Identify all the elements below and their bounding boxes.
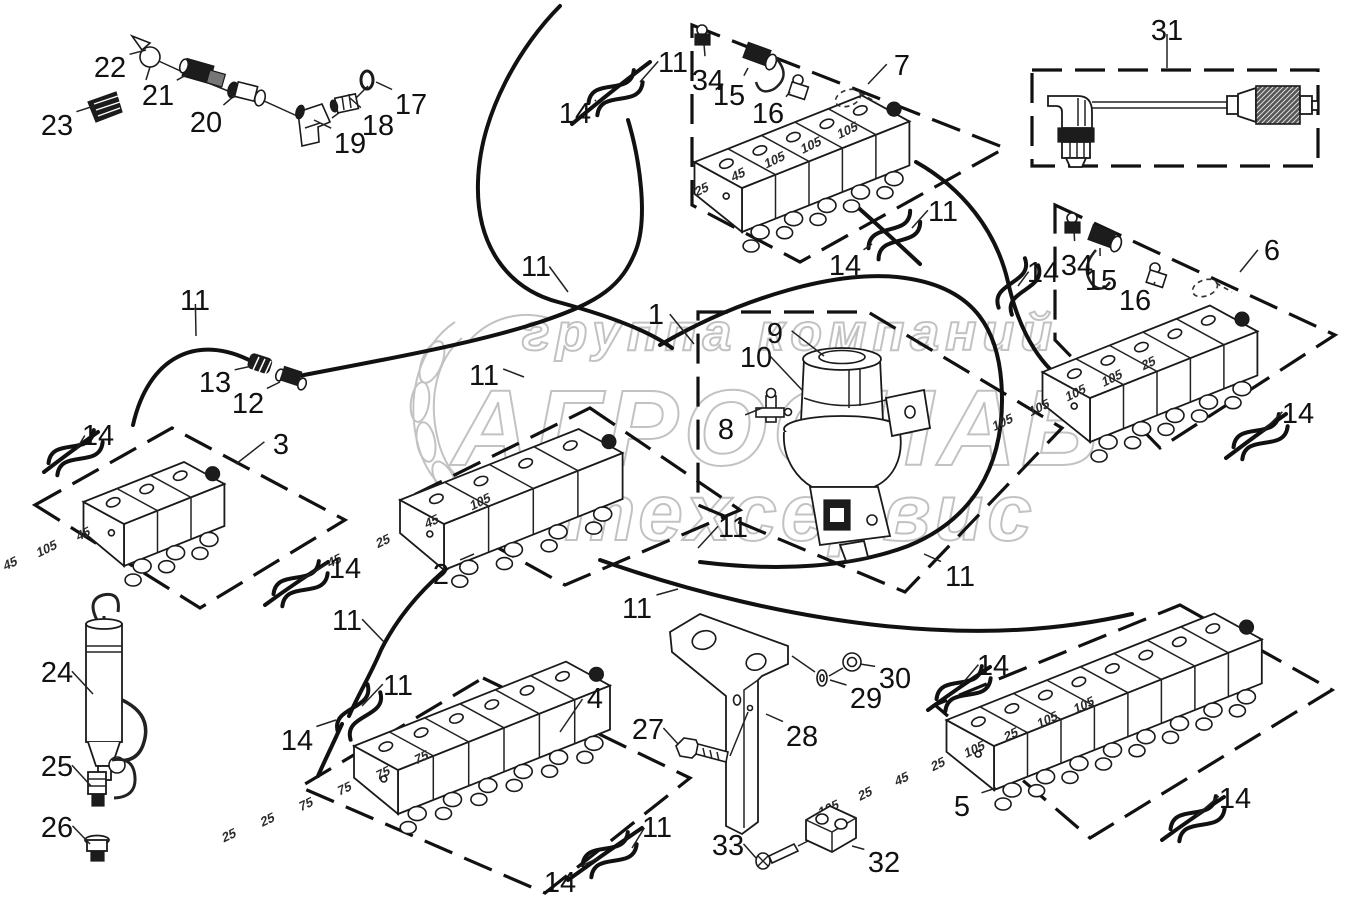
block-coupler [1104, 743, 1122, 757]
block-coupler [125, 574, 141, 586]
block-coupler [1225, 397, 1241, 409]
block-coupler [1133, 422, 1151, 436]
block-coupler [1237, 690, 1255, 704]
block-end-fitting [887, 102, 901, 116]
block-end-hole [427, 531, 433, 537]
callout-leader-3 [236, 442, 264, 464]
block-end-fitting [602, 435, 616, 449]
block-coupler [444, 793, 462, 807]
block-end-hole [108, 530, 114, 536]
watermark-bottom-text: техсервис [564, 468, 1036, 557]
block-section-stamp: 75 [337, 778, 353, 799]
callout-20: 20 [190, 107, 222, 139]
clamp-block-32 [806, 806, 856, 852]
block-end-fitting [206, 467, 220, 481]
callout-11: 11 [928, 196, 958, 228]
callout-6: 6 [1264, 235, 1280, 267]
block-coupler [810, 213, 826, 225]
clamp-22 [132, 36, 160, 80]
block-section-stamp: 45 [894, 768, 910, 789]
grease-cartridge-24 [86, 594, 146, 780]
hose-11-to-block5 [600, 560, 1132, 631]
callout-33: 33 [712, 830, 744, 862]
callout-26: 26 [41, 812, 73, 844]
parts-diagram-page: группа компаний АГРОСНАБ техсервис [0, 0, 1361, 901]
callout-14: 14 [544, 867, 576, 899]
callout-leader-6 [1240, 250, 1258, 272]
callout-leader-14 [300, 564, 327, 580]
hose-break-icon [865, 206, 924, 263]
block-coupler [594, 507, 612, 521]
nut-30 [829, 653, 861, 676]
bracket-hole-small [734, 695, 741, 705]
callout-11: 11 [469, 360, 499, 392]
fitting-chain-top-left [88, 36, 373, 146]
valve-block-4: 252575757575 [221, 662, 610, 846]
block-coupler [818, 198, 836, 212]
block-coupler [408, 807, 426, 821]
block-coupler [1192, 410, 1208, 422]
block-coupler [460, 560, 478, 574]
callout-13: 13 [199, 367, 231, 399]
block-coupler [785, 212, 803, 226]
callout-11: 11 [383, 670, 413, 702]
block-coupler [1196, 718, 1212, 730]
block-section-stamp: 75 [298, 793, 314, 814]
block-coupler [436, 808, 452, 820]
block-end-hole [1071, 403, 1077, 409]
callout-leader-14 [1262, 412, 1282, 432]
block-end-fitting [1240, 620, 1254, 634]
block-coupler [504, 543, 522, 557]
block-section-stamp: 25 [930, 753, 946, 774]
callout-leader-34 [1074, 230, 1075, 241]
callout-11: 11 [642, 812, 672, 844]
pump-clamp-hole [905, 406, 915, 418]
fitting-21 [178, 58, 225, 87]
block-coupler [133, 559, 151, 573]
callout-16: 16 [1119, 285, 1151, 317]
callout-12: 12 [232, 388, 264, 420]
block-coupler [586, 522, 602, 534]
pump-lid-inner [819, 351, 865, 364]
block-section-stamp: 25 [857, 783, 873, 804]
block-coupler [1037, 770, 1055, 784]
callout-14: 14 [977, 650, 1009, 682]
block-coupler [200, 532, 218, 546]
diagram-canvas: группа компаний АГРОСНАБ техсервис [0, 0, 1361, 901]
block-coupler [1204, 703, 1222, 717]
callout-leader-11 [362, 619, 384, 642]
callout-leader-29 [830, 680, 847, 685]
fitting-26 [85, 836, 109, 862]
block-coupler [541, 540, 557, 552]
block-coupler [471, 793, 487, 805]
hose-11-top-loop [478, 6, 672, 348]
block-coupler [1129, 745, 1145, 757]
callout-14: 14 [1282, 398, 1314, 430]
valve-block-7: 2545105105105 [694, 96, 910, 253]
block-section-stamp: 45 [2, 553, 18, 574]
callout-14: 14 [1027, 257, 1059, 289]
block-coupler [885, 172, 903, 186]
callout-leader-7 [868, 64, 887, 84]
block-coupler [400, 822, 416, 834]
valve-block-3: 4510545 [2, 462, 224, 586]
block-coupler [1062, 771, 1078, 783]
valve-block-5: 10525452510525105105 [817, 614, 1261, 821]
block-section-stamp: 105 [35, 536, 58, 560]
callout-leader-11 [657, 589, 679, 595]
callout-17: 17 [395, 89, 427, 121]
callout-22: 22 [94, 52, 126, 84]
block-coupler [1163, 731, 1179, 743]
callout-5: 5 [954, 791, 970, 823]
callout-23: 23 [41, 110, 73, 142]
union-20 [226, 81, 267, 107]
callout-11: 11 [622, 593, 652, 625]
block-coupler [1003, 783, 1021, 797]
block-end-hole [975, 751, 981, 757]
mounting-bracket-28 [670, 614, 788, 834]
block-coupler [506, 779, 522, 791]
block-coupler [167, 546, 185, 560]
block-end-fitting [1235, 312, 1249, 326]
block-coupler [585, 736, 603, 750]
callout-leader-34 [704, 44, 705, 56]
fitting-34-top [695, 25, 710, 45]
callout-11: 11 [658, 47, 688, 79]
block-coupler [1229, 705, 1245, 717]
callout-11: 11 [332, 605, 362, 637]
callout-16: 16 [752, 98, 784, 130]
callout-leader-14 [595, 100, 596, 101]
block-coupler [577, 751, 593, 763]
block-coupler [743, 240, 759, 252]
block-coupler [1091, 450, 1107, 462]
callout-14: 14 [559, 98, 591, 130]
block-coupler [1200, 395, 1218, 409]
block-coupler [1070, 756, 1088, 770]
callout-2: 2 [433, 559, 449, 591]
block-coupler [1158, 423, 1174, 435]
callout-18: 18 [362, 110, 394, 142]
block-coupler [844, 200, 860, 212]
block-end-hole [381, 776, 387, 782]
block-coupler [1096, 758, 1112, 770]
callout-27: 27 [632, 714, 664, 746]
callout-31: 31 [1151, 15, 1183, 47]
callout-11: 11 [180, 285, 210, 317]
fitting-12 [274, 367, 307, 391]
cable-plug-knurl [1256, 86, 1300, 124]
callout-leader-20 [223, 96, 234, 105]
callout-25: 25 [41, 751, 73, 783]
block-coupler [542, 765, 558, 777]
cable-plug-cone [1238, 88, 1256, 122]
callout-29: 29 [850, 683, 882, 715]
block-end-fitting [589, 667, 603, 681]
callout-leader-33 [744, 844, 757, 858]
block-coupler [1099, 435, 1117, 449]
pump-port [867, 515, 877, 525]
block-coupler [452, 575, 468, 587]
callout-30: 30 [879, 663, 911, 695]
callout-leader-27 [663, 728, 678, 744]
callout-leader-12 [267, 382, 280, 388]
callout-leader-26 [73, 826, 91, 844]
block-coupler [1171, 716, 1189, 730]
cartridge-top [86, 619, 122, 629]
block-coupler [1125, 437, 1141, 449]
callout-leader-15 [744, 68, 748, 76]
block-coupler [549, 525, 567, 539]
callout-14: 14 [829, 250, 861, 282]
callout-1: 1 [648, 299, 664, 331]
cartridge-body [86, 624, 122, 742]
callout-11: 11 [945, 561, 975, 593]
block-coupler [777, 227, 793, 239]
callout-leader-32 [852, 846, 864, 849]
fitting-15-top [743, 42, 784, 91]
block-coupler [479, 778, 497, 792]
callout-14: 14 [281, 725, 313, 757]
callout-24: 24 [41, 657, 73, 689]
callout-11: 11 [718, 512, 748, 544]
cable-wire [1092, 102, 1227, 108]
callout-leader-11 [549, 267, 568, 293]
callout-14: 14 [82, 420, 114, 452]
block-coupler [159, 561, 175, 573]
washer-29 [792, 656, 827, 686]
callout-4: 4 [587, 683, 603, 715]
callout-3: 3 [273, 429, 289, 461]
callout-28: 28 [786, 721, 818, 753]
block-end-hole [723, 193, 729, 199]
pump-bowl [784, 432, 901, 487]
cable-plug-ring [1227, 96, 1238, 114]
cable-assembly-31 [1048, 86, 1318, 167]
block-coupler [995, 798, 1011, 810]
callout-7: 7 [894, 50, 910, 82]
block-coupler [514, 764, 532, 778]
callout-leader-30 [860, 664, 875, 666]
callout-21: 21 [142, 80, 174, 112]
callout-15: 15 [1085, 265, 1117, 297]
block-coupler [1233, 382, 1251, 396]
pump-foot [840, 541, 868, 561]
callout-leader-17 [376, 82, 392, 90]
callout-32: 32 [868, 847, 900, 879]
block-coupler [1137, 730, 1155, 744]
block-coupler [1029, 785, 1045, 797]
block-section-stamp: 25 [221, 825, 237, 846]
fitting-18 [329, 94, 358, 113]
block-coupler [852, 185, 870, 199]
block-section-stamp: 25 [260, 809, 276, 830]
block-coupler [751, 225, 769, 239]
block-coupler [877, 187, 893, 199]
callout-8: 8 [718, 414, 734, 446]
callout-14: 14 [1219, 783, 1251, 815]
block-coupler [1166, 408, 1184, 422]
fitting-13 [247, 353, 273, 374]
callout-10: 10 [740, 342, 772, 374]
callout-11: 11 [521, 251, 551, 283]
callout-leader-14 [1196, 796, 1219, 816]
callout-leader-14 [316, 720, 336, 727]
callout-leader-28 [766, 714, 783, 722]
block-coupler [550, 750, 568, 764]
callout-15: 15 [713, 80, 745, 112]
pump-connector-window [830, 508, 844, 522]
block-coupler [192, 547, 208, 559]
callout-14: 14 [329, 553, 361, 585]
block-coupler [496, 558, 512, 570]
block-section-stamp: 25 [375, 530, 391, 551]
